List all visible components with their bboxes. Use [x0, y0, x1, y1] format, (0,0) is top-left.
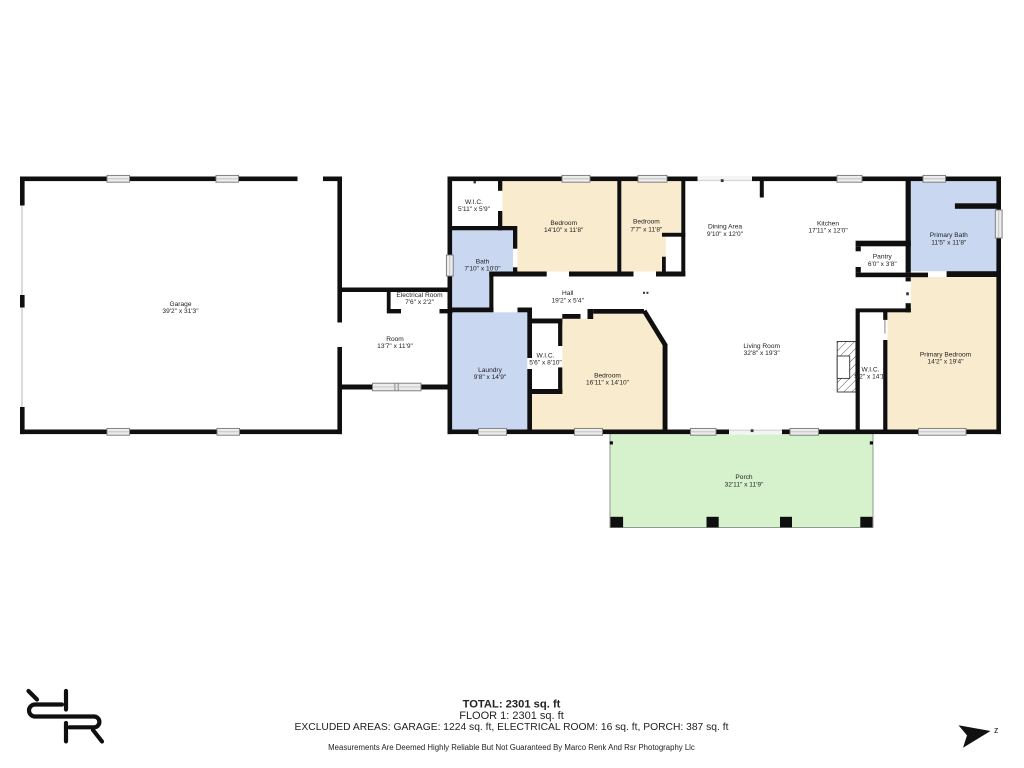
svg-text:FLOOR 1: 2301 sq. ft: FLOOR 1: 2301 sq. ft [459, 710, 564, 722]
svg-text:Living Room: Living Room [743, 343, 780, 350]
svg-text:Porch: Porch [735, 474, 753, 481]
svg-text:5'6" x 8'10": 5'6" x 8'10" [529, 360, 562, 367]
svg-text:Laundry: Laundry [478, 367, 503, 374]
svg-text:Primary Bath: Primary Bath [930, 232, 968, 239]
svg-text:5'2" x 14'1": 5'2" x 14'1" [854, 373, 887, 380]
svg-text:Electrical Room: Electrical Room [396, 292, 443, 299]
svg-text:7'6" x 2'2": 7'6" x 2'2" [405, 299, 434, 306]
svg-text:Bedroom: Bedroom [550, 220, 577, 227]
svg-text:9'8" x 14'9": 9'8" x 14'9" [474, 374, 507, 381]
svg-text:7'7" x 11'8": 7'7" x 11'8" [630, 226, 663, 233]
svg-text:5'11" x 5'9": 5'11" x 5'9" [458, 206, 491, 213]
svg-text:EXCLUDED AREAS: GARAGE: 1224 s: EXCLUDED AREAS: GARAGE: 1224 sq. ft, ELE… [295, 722, 729, 733]
svg-text:W.I.C.: W.I.C. [537, 353, 555, 360]
svg-text:7'10" x 10'0": 7'10" x 10'0" [464, 265, 501, 272]
svg-text:Bedroom: Bedroom [633, 218, 660, 225]
svg-text:z: z [994, 725, 998, 735]
svg-text:Primary Bedroom: Primary Bedroom [920, 351, 972, 358]
svg-text:Dining Area: Dining Area [708, 223, 742, 230]
svg-text:13'7" x 11'9": 13'7" x 11'9" [377, 343, 413, 350]
svg-text:Measurements Are Deemed Highly: Measurements Are Deemed Highly Reliable … [328, 743, 695, 752]
svg-text:Bath: Bath [476, 258, 490, 265]
svg-text:17'11" x 12'0": 17'11" x 12'0" [808, 227, 848, 234]
svg-text:Bedroom: Bedroom [594, 372, 621, 379]
svg-text:14'10" x 11'8": 14'10" x 11'8" [544, 227, 584, 234]
svg-text:32'8" x 19'3": 32'8" x 19'3" [744, 350, 781, 357]
svg-text:19'2" x 5'4": 19'2" x 5'4" [551, 297, 584, 304]
svg-text:Garage: Garage [170, 301, 192, 308]
svg-text:Kitchen: Kitchen [817, 220, 839, 227]
svg-text:39'2" x 31'3": 39'2" x 31'3" [162, 308, 199, 315]
svg-text:Hall: Hall [562, 290, 574, 297]
svg-text:W.I.C.: W.I.C. [465, 199, 483, 206]
svg-text:6'0" x 3'8": 6'0" x 3'8" [868, 261, 897, 268]
svg-text:11'5" x 11'8": 11'5" x 11'8" [931, 239, 967, 246]
svg-text:TOTAL: 2301 sq. ft: TOTAL: 2301 sq. ft [463, 699, 561, 711]
svg-text:32'11" x 11'9": 32'11" x 11'9" [725, 481, 765, 488]
svg-text:Room: Room [386, 336, 404, 343]
svg-text:Pantry: Pantry [873, 253, 893, 260]
svg-text:9'10" x 12'0": 9'10" x 12'0" [707, 231, 744, 238]
svg-text:14'2" x 19'4": 14'2" x 19'4" [927, 359, 964, 366]
svg-text:16'11" x 14'10": 16'11" x 14'10" [586, 380, 630, 387]
